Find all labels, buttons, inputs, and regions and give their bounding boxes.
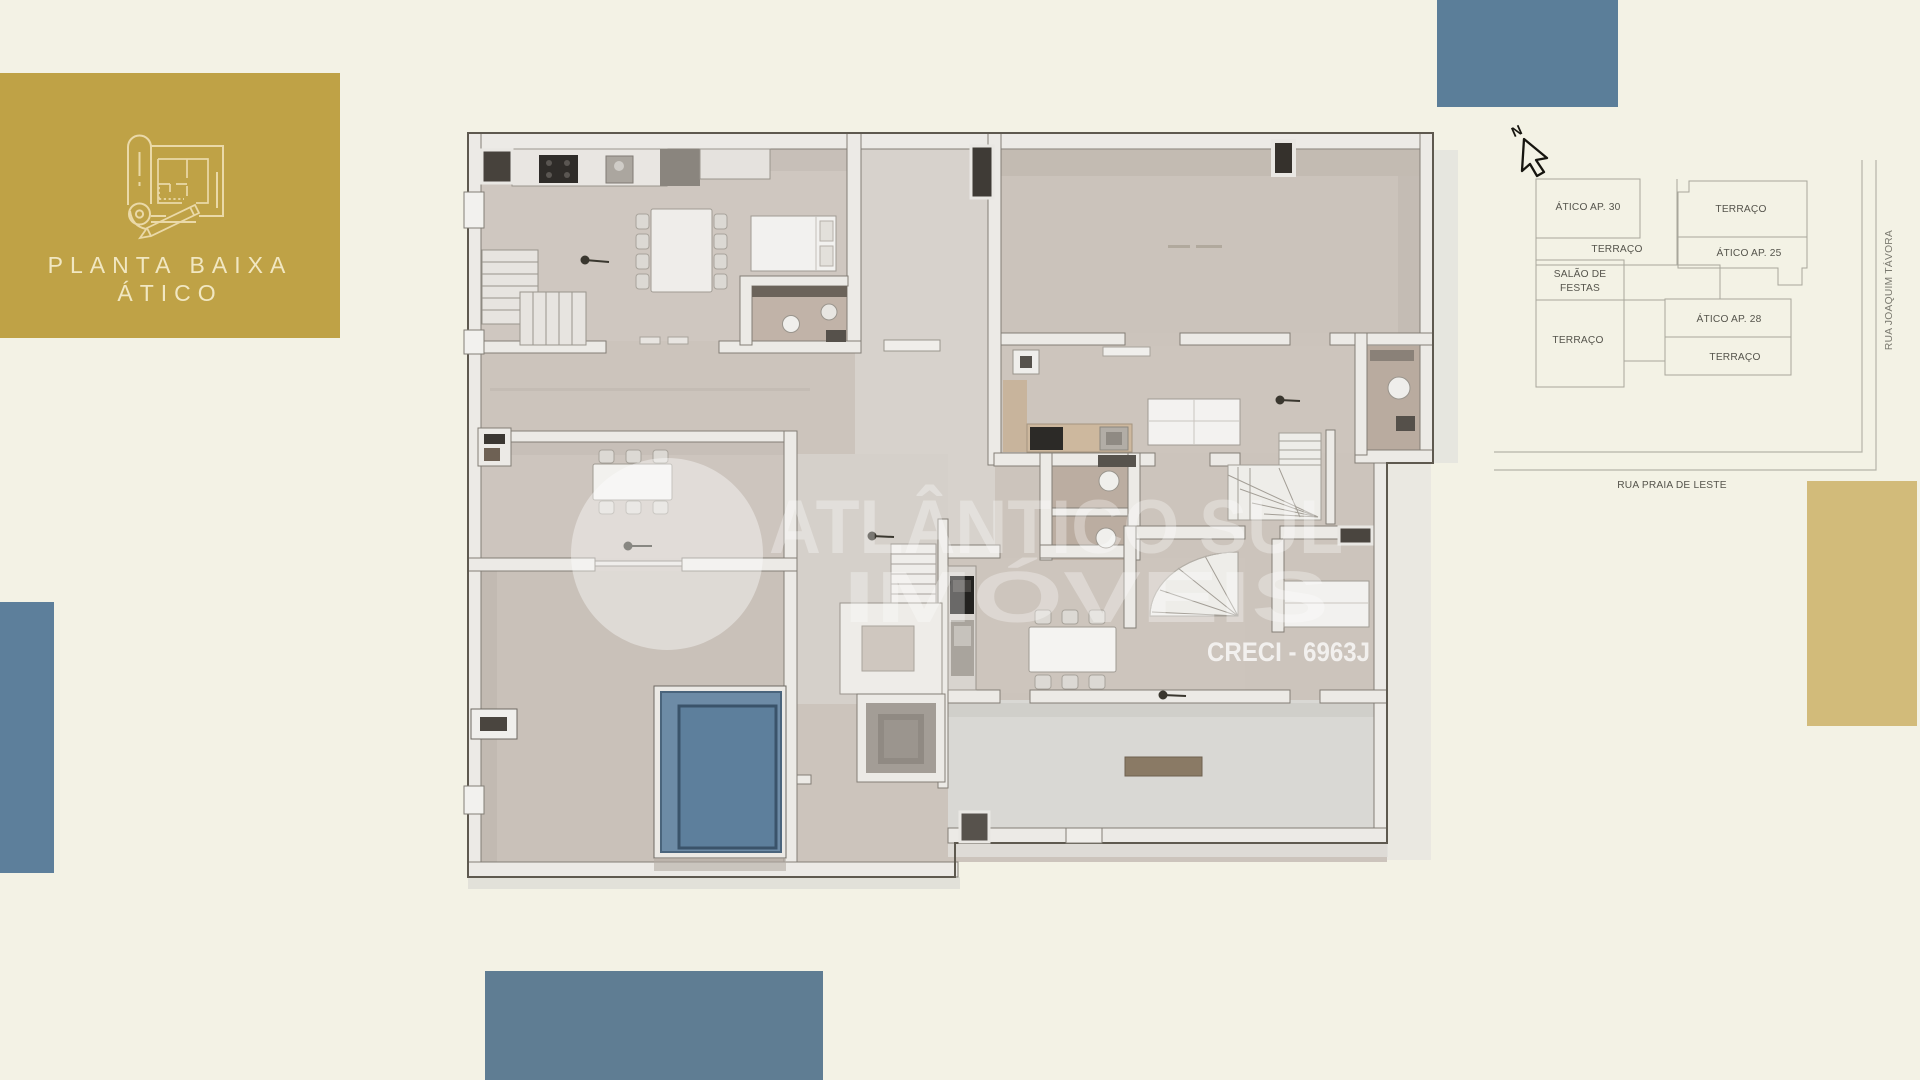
- svg-text:RUA JOAQUIM TÁVORA: RUA JOAQUIM TÁVORA: [1882, 230, 1895, 350]
- svg-text:TERRAÇO: TERRAÇO: [1709, 352, 1760, 363]
- svg-text:CRECI - 6963J: CRECI - 6963J: [1207, 637, 1370, 667]
- svg-text:ÁTICO AP. 30: ÁTICO AP. 30: [1555, 200, 1620, 213]
- svg-text:TERRAÇO: TERRAÇO: [1591, 244, 1642, 255]
- svg-text:IMÓVEIS: IMÓVEIS: [843, 557, 1329, 638]
- svg-text:FESTAS: FESTAS: [1560, 283, 1600, 294]
- svg-text:TERRAÇO: TERRAÇO: [1552, 335, 1603, 346]
- svg-text:ÁTICO AP. 28: ÁTICO AP. 28: [1696, 312, 1761, 325]
- svg-text:ÁTICO: ÁTICO: [117, 280, 222, 306]
- svg-text:N: N: [1509, 121, 1525, 140]
- svg-text:ÁTICO AP. 25: ÁTICO AP. 25: [1716, 246, 1781, 259]
- svg-text:TERRAÇO: TERRAÇO: [1715, 204, 1766, 215]
- svg-text:SALÃO DE: SALÃO DE: [1554, 267, 1607, 280]
- svg-text:RUA PRAIA DE LESTE: RUA PRAIA DE LESTE: [1617, 480, 1726, 491]
- svg-text:PLANTA BAIXA: PLANTA BAIXA: [48, 252, 293, 278]
